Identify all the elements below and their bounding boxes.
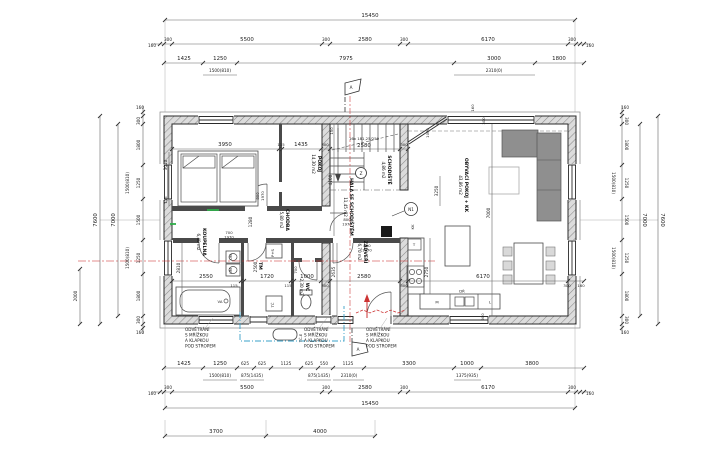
dim: 2580 — [358, 37, 372, 43]
kitchen-counter-wall — [407, 238, 424, 294]
vent-note-1: ODVĚTRÁNÍ S MŘÍŽKOU A KLAPKOU POD STROPE… — [185, 327, 216, 349]
room-obyvaci-area: 43,86 m2 — [458, 175, 463, 195]
room-schodiste-area: 4,86 m2 — [381, 161, 386, 178]
stair-note: 16x 181,25/250 — [349, 136, 380, 141]
dim: 300 — [164, 385, 172, 390]
label-basin-1: UM — [228, 254, 233, 260]
dim: 300 — [136, 117, 141, 125]
floor-plan-drawing: A A Z N1 15450 160 300 5500 300 2580 300… — [0, 0, 702, 468]
dim: 2580 — [357, 274, 371, 280]
dim: 1435 — [294, 142, 308, 148]
dim-window: 1500(810) — [611, 247, 616, 269]
note-line: A KLAPKOU — [185, 338, 209, 343]
room-hala-area: 11,45 m2 — [343, 197, 348, 217]
dim-window: 2310(0) — [341, 373, 358, 378]
note-line: ODVĚTRÁNÍ — [185, 327, 210, 332]
dim: 6170 — [481, 37, 495, 43]
note-line: ODVĚTRÁNÍ — [366, 327, 391, 332]
dim: 300 — [400, 37, 408, 42]
room-zadveri-area: 6,70 m2 — [357, 243, 362, 260]
dim: 1425 — [177, 361, 191, 367]
dim: 1425 — [177, 56, 191, 62]
label-heatpump-out: TČ-E — [298, 333, 303, 343]
dim-window: 1500(810) — [125, 172, 130, 194]
dim: 300 — [321, 283, 329, 288]
dim: 300 — [481, 117, 486, 125]
kitchen-island — [445, 226, 470, 266]
dim-window: 2310(0) — [486, 68, 503, 73]
interior-load-bearing-walls — [322, 124, 408, 316]
dim: 1250 — [213, 56, 227, 62]
dim: 300 — [164, 37, 172, 42]
dim: 1250 — [136, 252, 141, 263]
dim-window: 1375(935) — [456, 373, 478, 378]
label-sink: DŘ — [459, 289, 465, 294]
label-heatpump: TČ — [270, 302, 275, 308]
dim: 4000 — [313, 429, 327, 435]
dim: 1250 — [624, 253, 629, 264]
dim: 2750 — [424, 266, 429, 277]
dim-window: 1500(810) — [125, 247, 130, 269]
dim-window: 1500(810) — [209, 373, 231, 378]
dim: 3700 — [209, 429, 223, 435]
service-lines — [78, 96, 435, 345]
dim: 300 — [322, 385, 330, 390]
dim: 3300 — [402, 361, 416, 367]
room-schodiste: SCHODIŠTĚ — [386, 155, 394, 185]
dim-window: 1500(810) — [209, 68, 231, 73]
dim: 160 — [586, 391, 594, 396]
dim: 1800 — [552, 56, 566, 62]
door-dim: 900 — [480, 313, 485, 321]
dim: 300 — [322, 37, 330, 42]
heat-pump-outdoor — [273, 329, 297, 340]
dim: 300 — [400, 142, 408, 147]
note-line: POD STROPEM — [366, 344, 397, 349]
dim: 300 — [400, 283, 408, 288]
dim: 300 — [568, 37, 576, 42]
dim-window: 875(1435) — [308, 373, 330, 378]
dim: 160 — [577, 283, 585, 288]
dim: 160 — [136, 105, 144, 110]
dim: 1500 — [136, 214, 141, 225]
label-washer: P+S — [270, 248, 275, 256]
dim-top-ins-l: 160 — [148, 43, 156, 48]
note-line: A KLAPKOU — [366, 338, 390, 343]
dim: 160 — [148, 391, 156, 396]
dim: 1250 — [136, 177, 141, 188]
dim-right-inner: 7000 — [641, 213, 647, 227]
dim: 1125 — [281, 361, 292, 366]
section-marker-top: A — [345, 79, 361, 112]
note-line: S MŘÍŽKOU — [185, 333, 209, 338]
dim: 550 — [320, 361, 328, 366]
dim: 2635 — [331, 266, 336, 277]
dim-bottom-overall: 15450 — [361, 401, 379, 407]
dim-window: 875(1435) — [241, 373, 263, 378]
note-line: S MŘÍŽKOU — [304, 333, 328, 338]
dim: 300 — [136, 316, 141, 324]
label-bathtub: VA — [218, 299, 223, 304]
fireplace — [381, 226, 392, 237]
dim: 1000 — [460, 361, 474, 367]
dim: 300 — [624, 316, 629, 324]
dim: 115 — [163, 196, 168, 204]
dim: 2580 — [358, 385, 372, 391]
coffee-table — [489, 167, 519, 194]
dim: 2810 — [176, 262, 181, 273]
door-dim: 700 — [293, 266, 298, 274]
entrance-arrow — [364, 294, 370, 302]
label-dishwasher: M — [435, 300, 438, 305]
dim: 1800 — [624, 291, 629, 302]
room-koupelna-area: 6,40 m2 — [196, 233, 201, 250]
dim: 6170 — [481, 385, 495, 391]
dim: 160 — [136, 330, 144, 335]
dim: 115 — [277, 142, 285, 147]
dim: 300 — [400, 385, 408, 390]
dim: 6170 — [476, 274, 490, 280]
dim-left-partial: 2000 — [73, 290, 78, 301]
dim: 1500 — [624, 215, 629, 226]
dim: 1720 — [260, 274, 274, 280]
vent-note-2: ODVĚTRÁNÍ S MŘÍŽKOU A KLAPKOU POD STROPE… — [304, 327, 335, 349]
note-line: S MŘÍŽKOU — [366, 333, 390, 338]
symbol-n1: N1 — [392, 203, 418, 217]
dim: 115 — [284, 283, 292, 288]
dim: 3000 — [487, 56, 501, 62]
dim: 300 — [321, 142, 329, 147]
dim: 1800 — [624, 140, 629, 151]
dim: 3800 — [525, 361, 539, 367]
dim: 3950 — [218, 142, 232, 148]
dim: 7000 — [486, 207, 491, 218]
dim-right-overall: 7600 — [659, 213, 665, 227]
dim: 3250 — [434, 185, 439, 196]
dim-left-inner: 7000 — [111, 213, 117, 227]
dim: 1000 — [425, 128, 430, 138]
bathtub — [176, 287, 240, 315]
dim: 300 — [563, 283, 571, 288]
room-tm: TM — [257, 262, 263, 270]
dim: 160 — [621, 330, 629, 335]
dim: 5500 — [240, 37, 254, 43]
dim: 625 — [305, 361, 313, 366]
dim: 1280 — [248, 216, 253, 227]
note-line: POD STROPEM — [185, 344, 216, 349]
dim-left-overall: 7600 — [93, 213, 99, 227]
section-label-bottom: A — [357, 347, 360, 352]
room-pokoj-area: 14,30 m2 — [311, 154, 316, 174]
dim-top-overall: 15450 — [361, 13, 379, 19]
n1-label: N1 — [408, 207, 414, 212]
room-wc-area: 2,30 m2 — [299, 278, 304, 295]
room-hala: HALA SE SCHODIŠTĚM — [348, 178, 356, 236]
label-basin-2: UM — [228, 268, 233, 274]
dim: 115 — [230, 283, 238, 288]
dim: 150 — [329, 127, 334, 135]
z-label: Z — [360, 171, 363, 176]
note-line: A KLAPKOU — [304, 338, 328, 343]
dim: 1250 — [213, 361, 227, 367]
dim: 4100 — [328, 174, 333, 185]
note-line: ODVĚTRÁNÍ — [304, 327, 329, 332]
dim: 3010 — [163, 159, 168, 170]
dim: 625 — [241, 361, 249, 366]
floor-plan-page: A A Z N1 15450 160 300 5500 300 2580 300… — [0, 0, 702, 468]
label-kitchen: KK — [410, 224, 415, 229]
dim: 5500 — [240, 385, 254, 391]
room-chodba-area: 5,80 m2 — [279, 211, 284, 228]
dim: 625 — [258, 361, 266, 366]
bed — [178, 151, 258, 206]
dim: 160 — [470, 104, 475, 112]
dim: 1800 — [136, 290, 141, 301]
vent-note-3: ODVĚTRÁNÍ S MŘÍŽKOU A KLAPKOU POD STROPE… — [366, 327, 397, 349]
dim-top-ins-r: 160 — [586, 43, 594, 48]
note-line: POD STROPEM — [304, 344, 335, 349]
door-dim: 1970 — [260, 191, 265, 201]
dim: 160 — [621, 105, 629, 110]
dining-set — [503, 243, 555, 284]
dim: 1800 — [136, 139, 141, 150]
dim: 7975 — [339, 56, 353, 62]
dim: 300 — [624, 117, 629, 125]
dim-window: 1500(810) — [611, 172, 616, 194]
dim: 2580 — [357, 143, 371, 149]
dim: 300 — [568, 385, 576, 390]
symbol-z: Z — [356, 168, 367, 179]
section-label-top: A — [350, 85, 353, 90]
dim: 1125 — [343, 361, 354, 366]
dim: 1250 — [624, 178, 629, 189]
door-dim: 1970 — [224, 235, 234, 240]
dim: 2550 — [199, 274, 213, 280]
room-obyvaci: OBÝVACÍ POKOJ + KK — [463, 158, 471, 213]
